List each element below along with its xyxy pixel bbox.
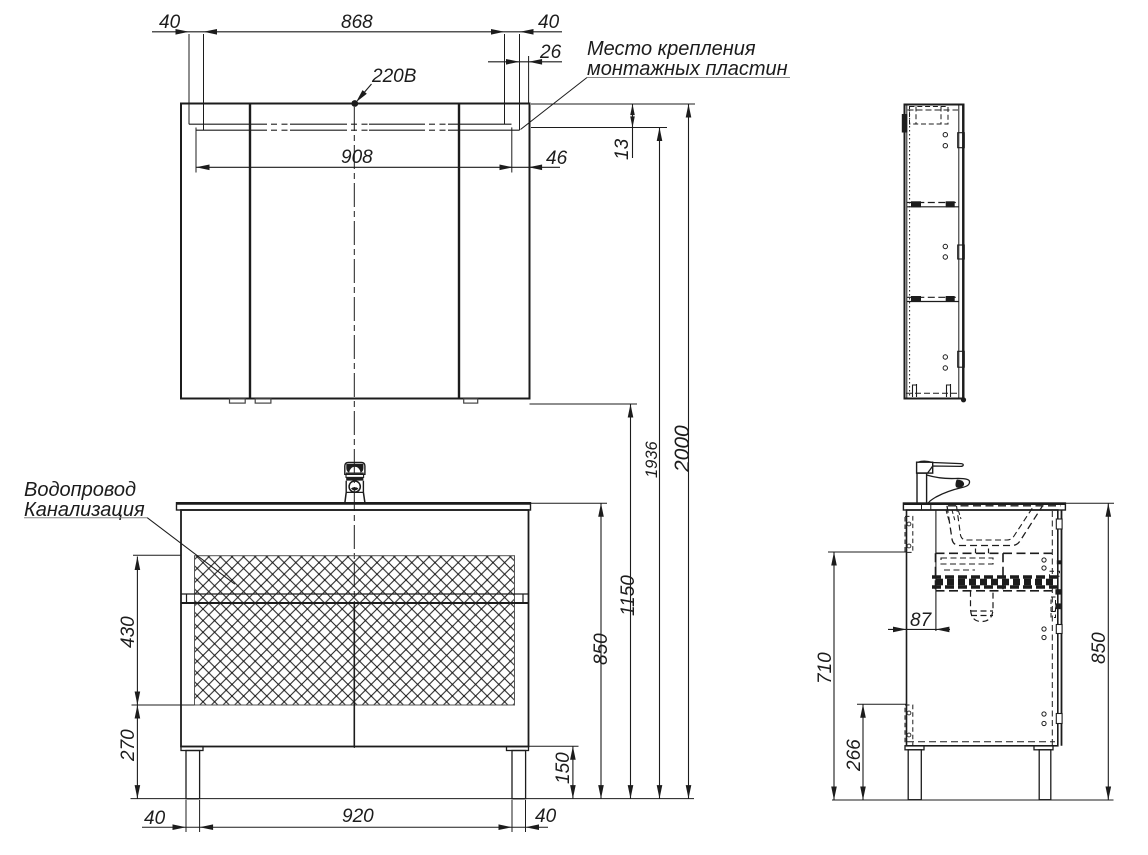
svg-text:2000: 2000 bbox=[671, 425, 694, 473]
svg-text:40: 40 bbox=[144, 808, 166, 829]
svg-text:920: 920 bbox=[342, 806, 374, 827]
svg-text:850: 850 bbox=[1089, 632, 1110, 664]
svg-text:850: 850 bbox=[591, 633, 612, 665]
svg-text:13: 13 bbox=[612, 138, 633, 160]
svg-text:40: 40 bbox=[535, 806, 557, 827]
svg-text:868: 868 bbox=[341, 12, 373, 33]
svg-text:40: 40 bbox=[159, 12, 181, 33]
svg-text:87: 87 bbox=[910, 610, 933, 631]
svg-text:266: 266 bbox=[844, 739, 865, 772]
svg-text:1150: 1150 bbox=[618, 575, 639, 616]
svg-text:46: 46 bbox=[546, 148, 568, 169]
svg-text:Место крепления: Место крепления bbox=[587, 38, 756, 60]
svg-text:220В: 220В bbox=[371, 66, 417, 87]
svg-text:908: 908 bbox=[341, 147, 373, 168]
svg-text:Водопровод: Водопровод bbox=[24, 479, 136, 501]
svg-text:26: 26 bbox=[539, 42, 562, 63]
svg-text:40: 40 bbox=[538, 12, 560, 33]
svg-text:1936: 1936 bbox=[643, 440, 661, 478]
svg-text:710: 710 bbox=[815, 652, 836, 684]
svg-text:монтажных пластин: монтажных пластин bbox=[587, 58, 788, 80]
svg-text:270: 270 bbox=[118, 729, 139, 762]
svg-text:150: 150 bbox=[553, 752, 574, 784]
svg-text:430: 430 bbox=[118, 616, 139, 648]
